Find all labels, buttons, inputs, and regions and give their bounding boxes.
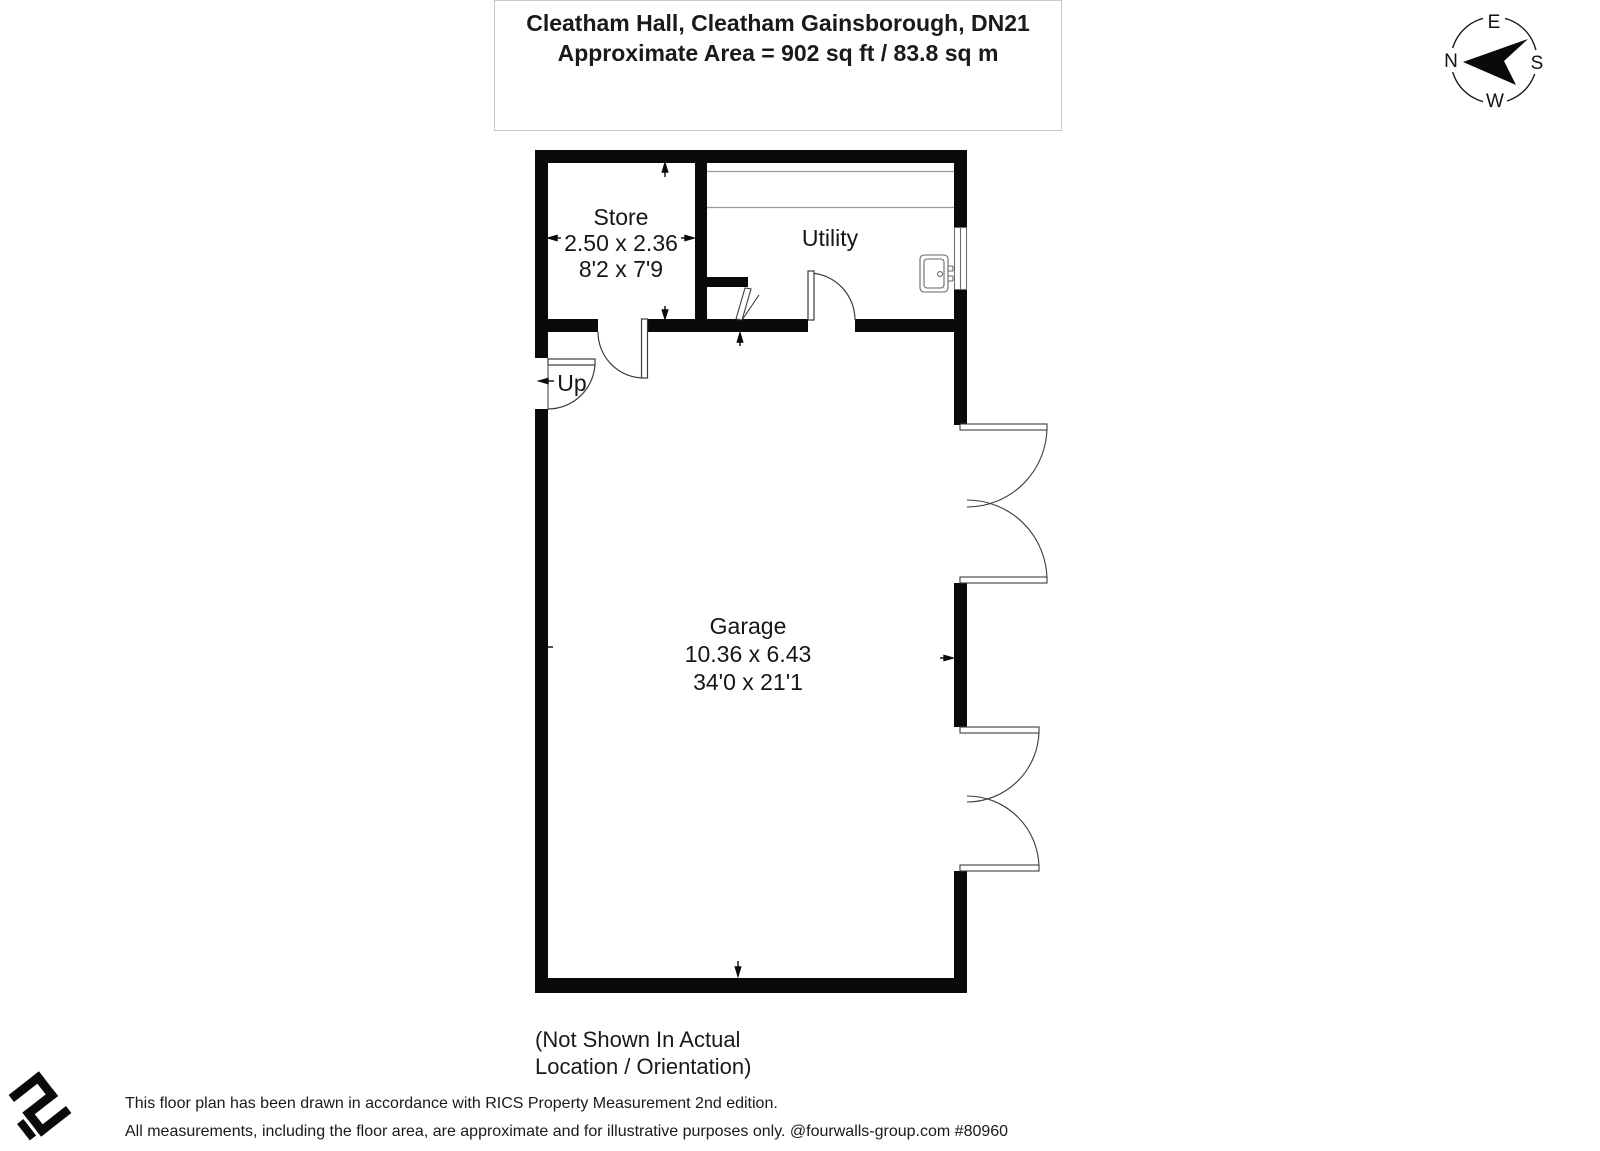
garage-dim-metric: 10.36 x 6.43 — [685, 641, 812, 667]
plan-caption-line2: Location / Orientation) — [535, 1053, 751, 1080]
garage-dim-imperial: 34'0 x 21'1 — [693, 669, 803, 695]
fourwalls-logo-icon — [2, 1056, 82, 1151]
utility-label: Utility — [802, 225, 859, 251]
compass-label-north: N — [1444, 51, 1458, 72]
title-box: Cleatham Hall, Cleatham Gainsborough, DN… — [494, 0, 1062, 131]
utility-door — [808, 271, 855, 320]
wall-right-2 — [954, 290, 967, 425]
wall-left-upper — [535, 150, 548, 358]
utility-window — [954, 227, 967, 290]
stairs-up-label: Up — [557, 370, 586, 396]
compass-label-south: S — [1531, 53, 1544, 74]
wall-top — [535, 150, 967, 163]
wall-left-lower — [535, 409, 548, 993]
store-label: Store — [594, 204, 649, 230]
compass-label-west: W — [1486, 91, 1504, 112]
wall-utility-garage-b — [855, 319, 954, 332]
plan-caption: (Not Shown In Actual Location / Orientat… — [535, 1026, 751, 1080]
garage-door-lower — [960, 727, 1039, 871]
store-dim-imperial: 8'2 x 7'9 — [579, 256, 663, 282]
footer-disclaimer: This floor plan has been drawn in accord… — [125, 1090, 1008, 1146]
approximate-area: Approximate Area = 902 sq ft / 83.8 sq m — [495, 38, 1061, 68]
wall-right-4 — [954, 871, 967, 993]
footer-line2: All measurements, including the floor ar… — [125, 1118, 1008, 1146]
floorplan-page: Cleatham Hall, Cleatham Gainsborough, DN… — [0, 0, 1600, 1151]
footer-line1: This floor plan has been drawn in accord… — [125, 1090, 1008, 1118]
plan-caption-line1: (Not Shown In Actual — [535, 1026, 751, 1053]
wall-utility-stub — [707, 277, 748, 287]
compass-needle-icon — [1463, 39, 1528, 85]
compass-rose: E N S W — [1438, 2, 1556, 120]
wall-store-garage-a — [548, 319, 598, 332]
store-door — [598, 319, 648, 378]
page-title: Cleatham Hall, Cleatham Gainsborough, DN… — [495, 8, 1061, 38]
garage-door-upper — [960, 424, 1047, 583]
wall-store-garage-b — [648, 319, 695, 332]
wall-bottom — [535, 978, 967, 993]
wall-store-utility — [695, 163, 707, 332]
utility-counter — [707, 172, 954, 208]
compass-label-east: E — [1488, 12, 1501, 33]
wall-right-1 — [954, 150, 967, 227]
store-dim-metric: 2.50 x 2.36 — [564, 230, 678, 256]
utility-cupboard-door — [736, 288, 759, 320]
garage-label: Garage — [710, 613, 787, 639]
floor-plan: Store 2.50 x 2.36 8'2 x 7'9 Utility Gara… — [525, 140, 1065, 1010]
sink-icon — [920, 255, 953, 292]
wall-right-3 — [954, 583, 967, 727]
wall-utility-garage-a — [707, 319, 808, 332]
